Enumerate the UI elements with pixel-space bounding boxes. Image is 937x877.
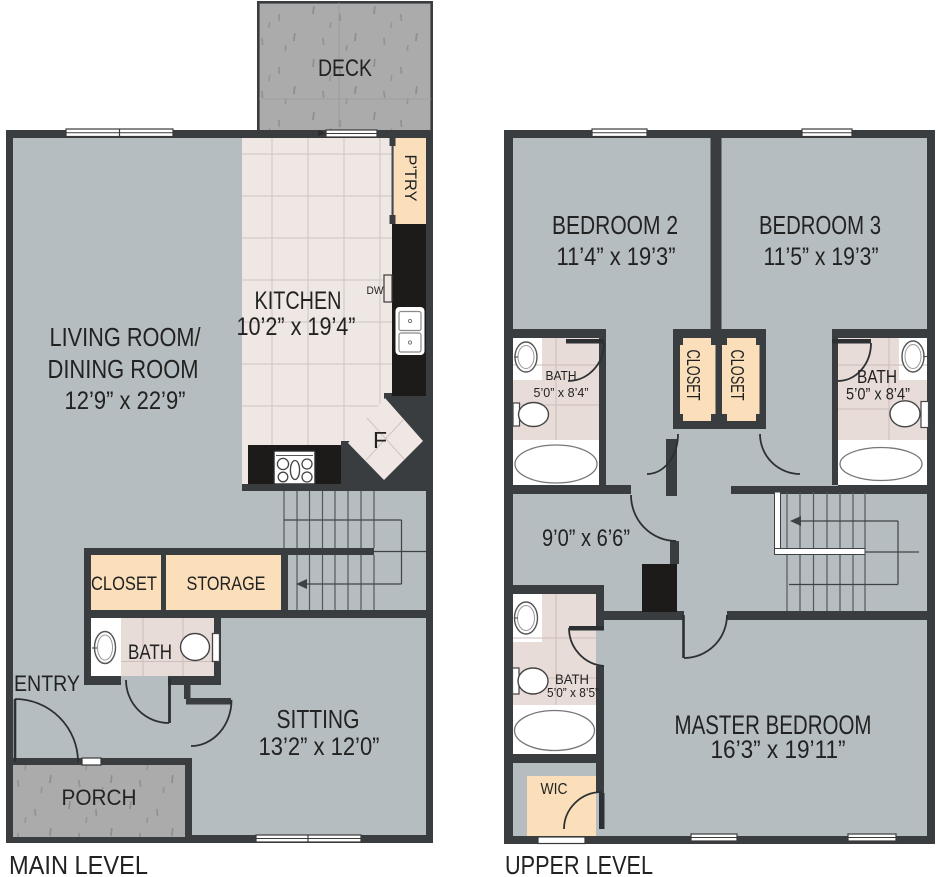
svg-text:KITCHEN: KITCHEN [255, 287, 342, 315]
svg-text:BATH: BATH [128, 641, 172, 664]
svg-text:BEDROOM 2: BEDROOM 2 [552, 210, 678, 240]
svg-text:CLOSET: CLOSET [727, 350, 747, 401]
svg-text:13’2” x 12’0”: 13’2” x 12’0” [259, 733, 380, 761]
svg-text:BATH: BATH [546, 369, 577, 383]
svg-text:BATH: BATH [555, 671, 589, 687]
svg-text:11’4” x 19’3”: 11’4” x 19’3” [557, 243, 676, 271]
svg-text:ENTRY: ENTRY [14, 671, 80, 696]
svg-text:UPPER LEVEL: UPPER LEVEL [505, 850, 653, 877]
svg-text:12’9” x 22’9”: 12’9” x 22’9” [65, 387, 186, 415]
svg-text:LIVING ROOM/: LIVING ROOM/ [50, 322, 202, 352]
svg-text:P’TRY: P’TRY [401, 155, 420, 202]
svg-text:DINING ROOM: DINING ROOM [48, 354, 199, 384]
svg-text:11’5” x 19’3”: 11’5” x 19’3” [764, 243, 879, 271]
svg-text:10’2” x 19’4”: 10’2” x 19’4” [237, 313, 356, 341]
svg-text:CLOSET: CLOSET [91, 574, 157, 595]
svg-text:5’0” x 8’4”: 5’0” x 8’4” [534, 385, 589, 400]
svg-text:SITTING: SITTING [277, 704, 360, 734]
svg-text:PORCH: PORCH [62, 785, 137, 810]
svg-text:F: F [373, 427, 387, 453]
svg-text:16’3” x 19’11”: 16’3” x 19’11” [711, 736, 846, 764]
svg-text:STORAGE: STORAGE [187, 574, 266, 595]
svg-text:5’0” x 8’4”: 5’0” x 8’4” [846, 385, 910, 404]
svg-text:WIC: WIC [541, 781, 568, 798]
svg-text:9’0” x 6’6”: 9’0” x 6’6” [542, 525, 630, 552]
svg-text:MAIN LEVEL: MAIN LEVEL [9, 850, 148, 877]
svg-text:5’0” x 8’5”: 5’0” x 8’5” [547, 686, 599, 700]
svg-text:BEDROOM 3: BEDROOM 3 [759, 210, 881, 240]
svg-text:DW: DW [367, 285, 385, 297]
svg-text:DECK: DECK [318, 55, 372, 82]
svg-text:CLOSET: CLOSET [683, 350, 703, 401]
